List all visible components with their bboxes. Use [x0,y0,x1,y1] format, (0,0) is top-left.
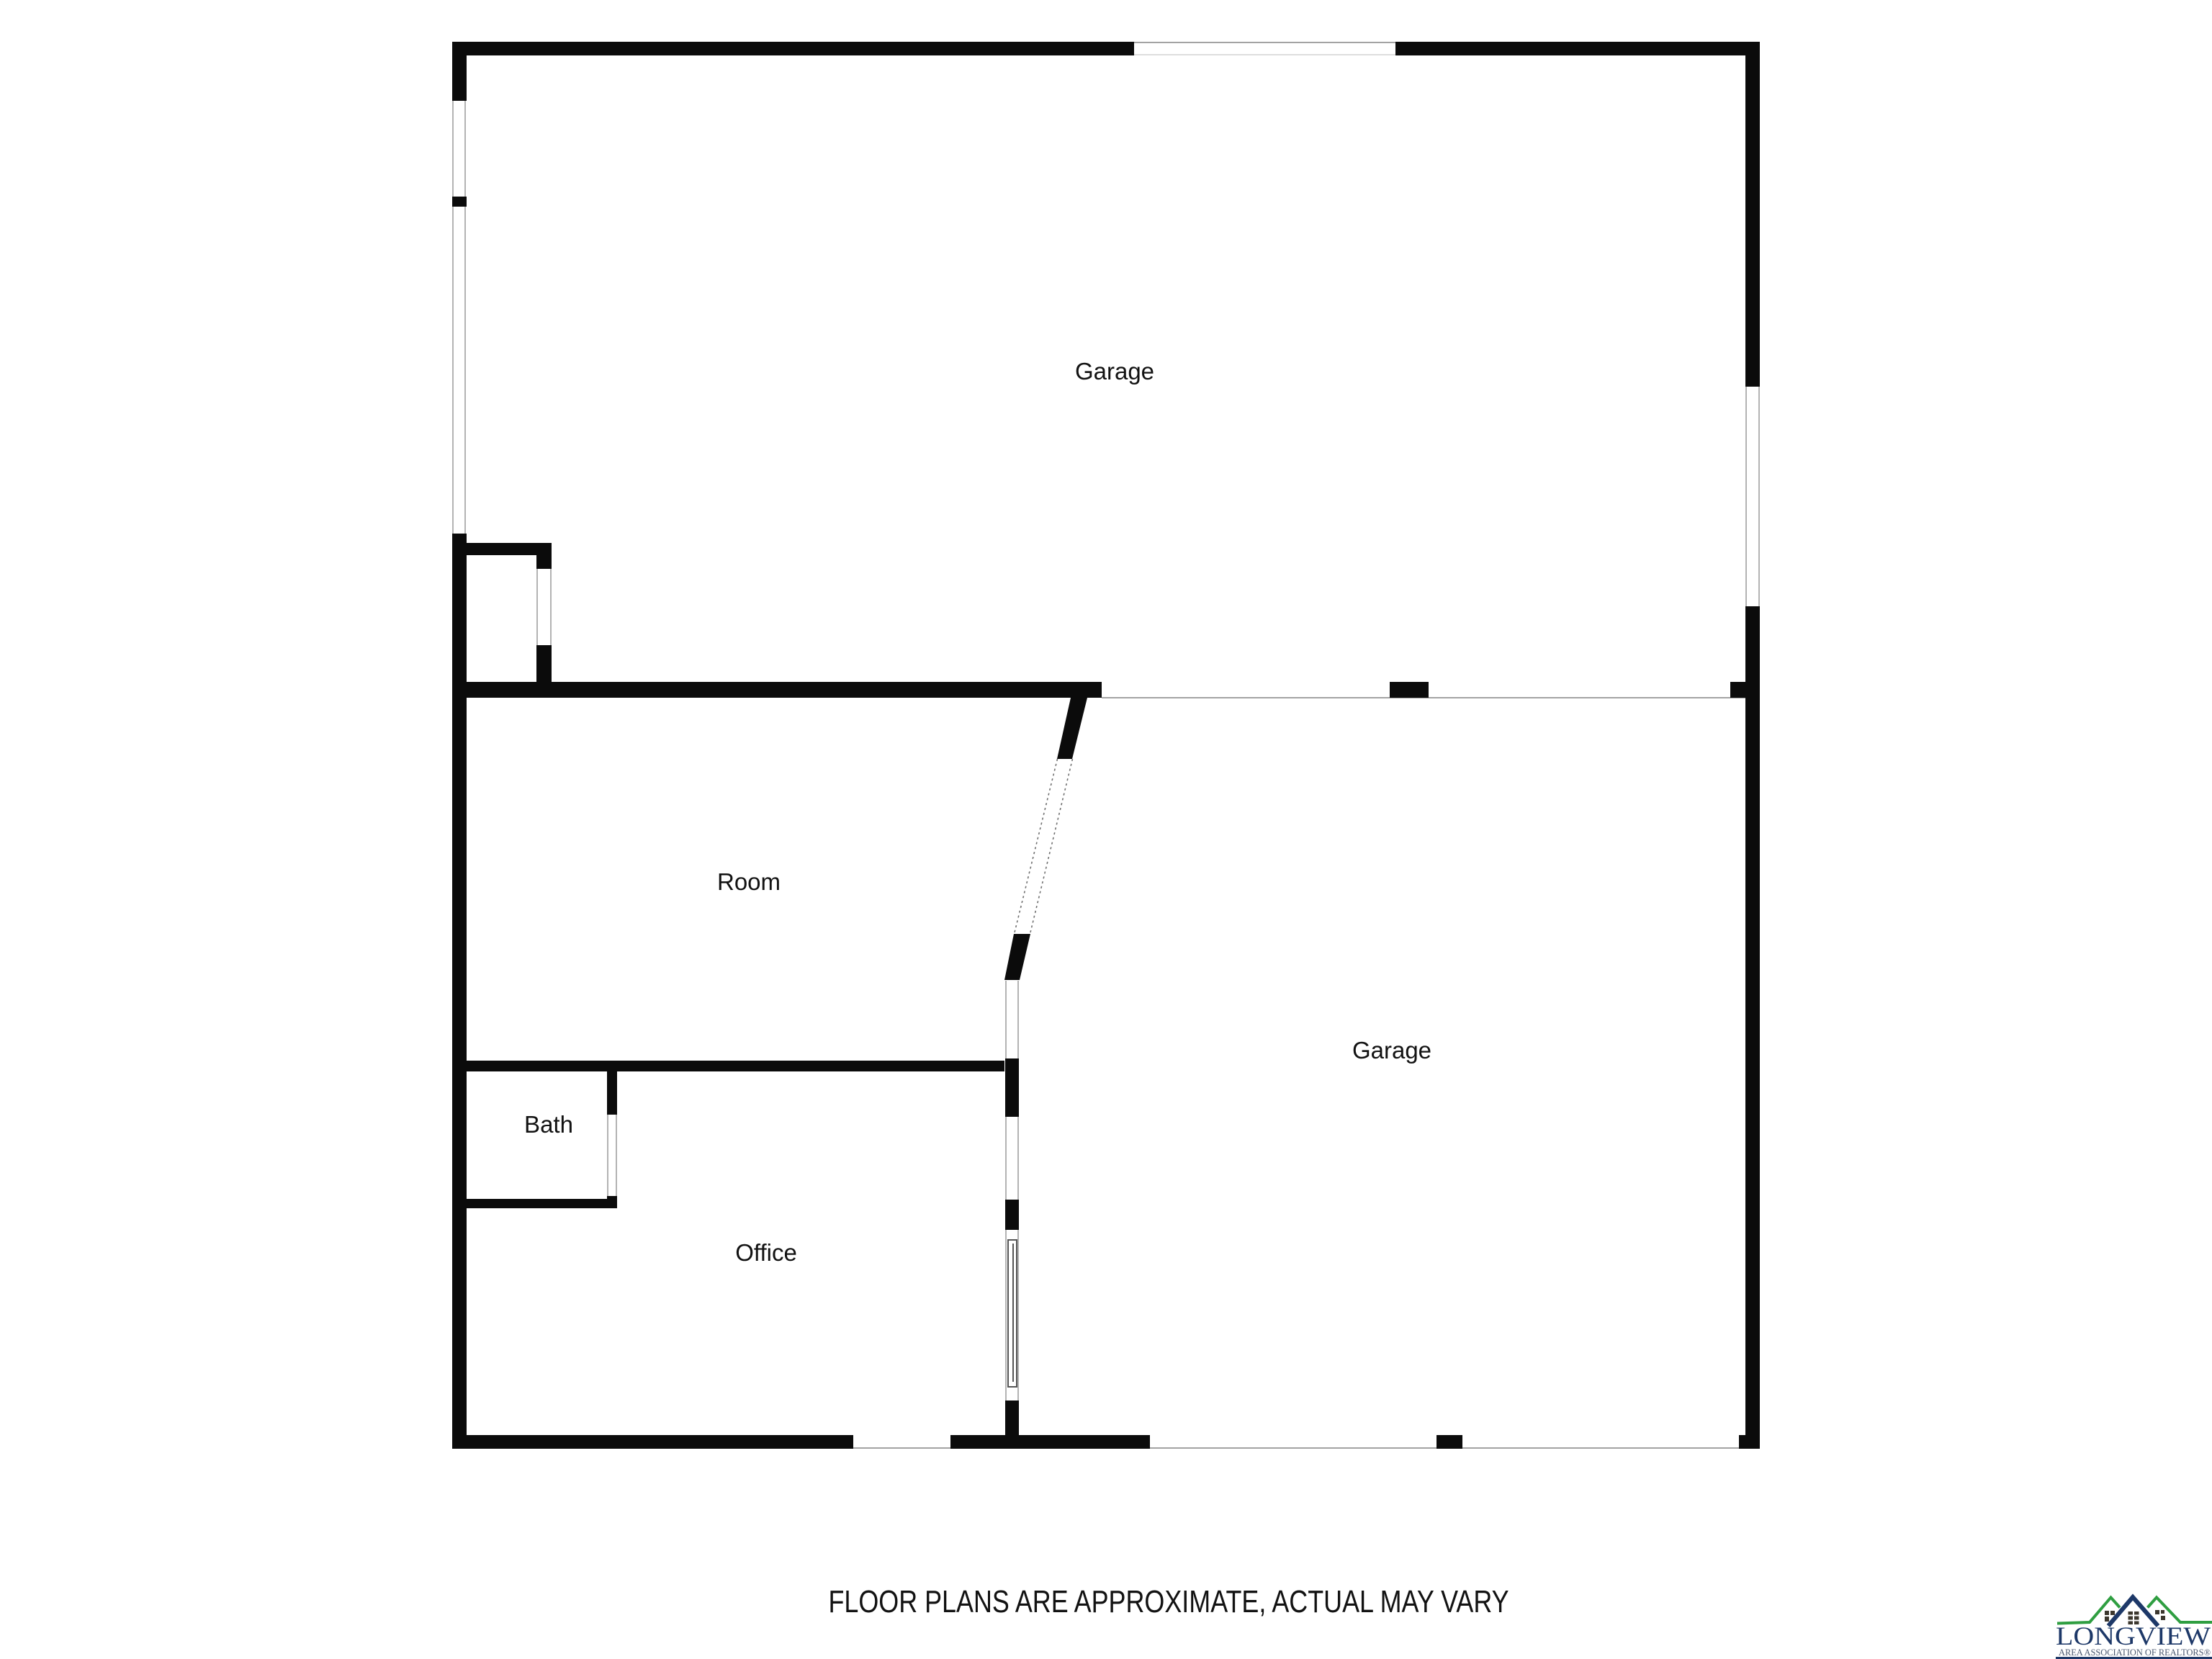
svg-text:LONGVIEW: LONGVIEW [2056,1622,2211,1650]
svg-text:AREA ASSOCIATION OF REALTORS®: AREA ASSOCIATION OF REALTORS® [2059,1647,2211,1658]
